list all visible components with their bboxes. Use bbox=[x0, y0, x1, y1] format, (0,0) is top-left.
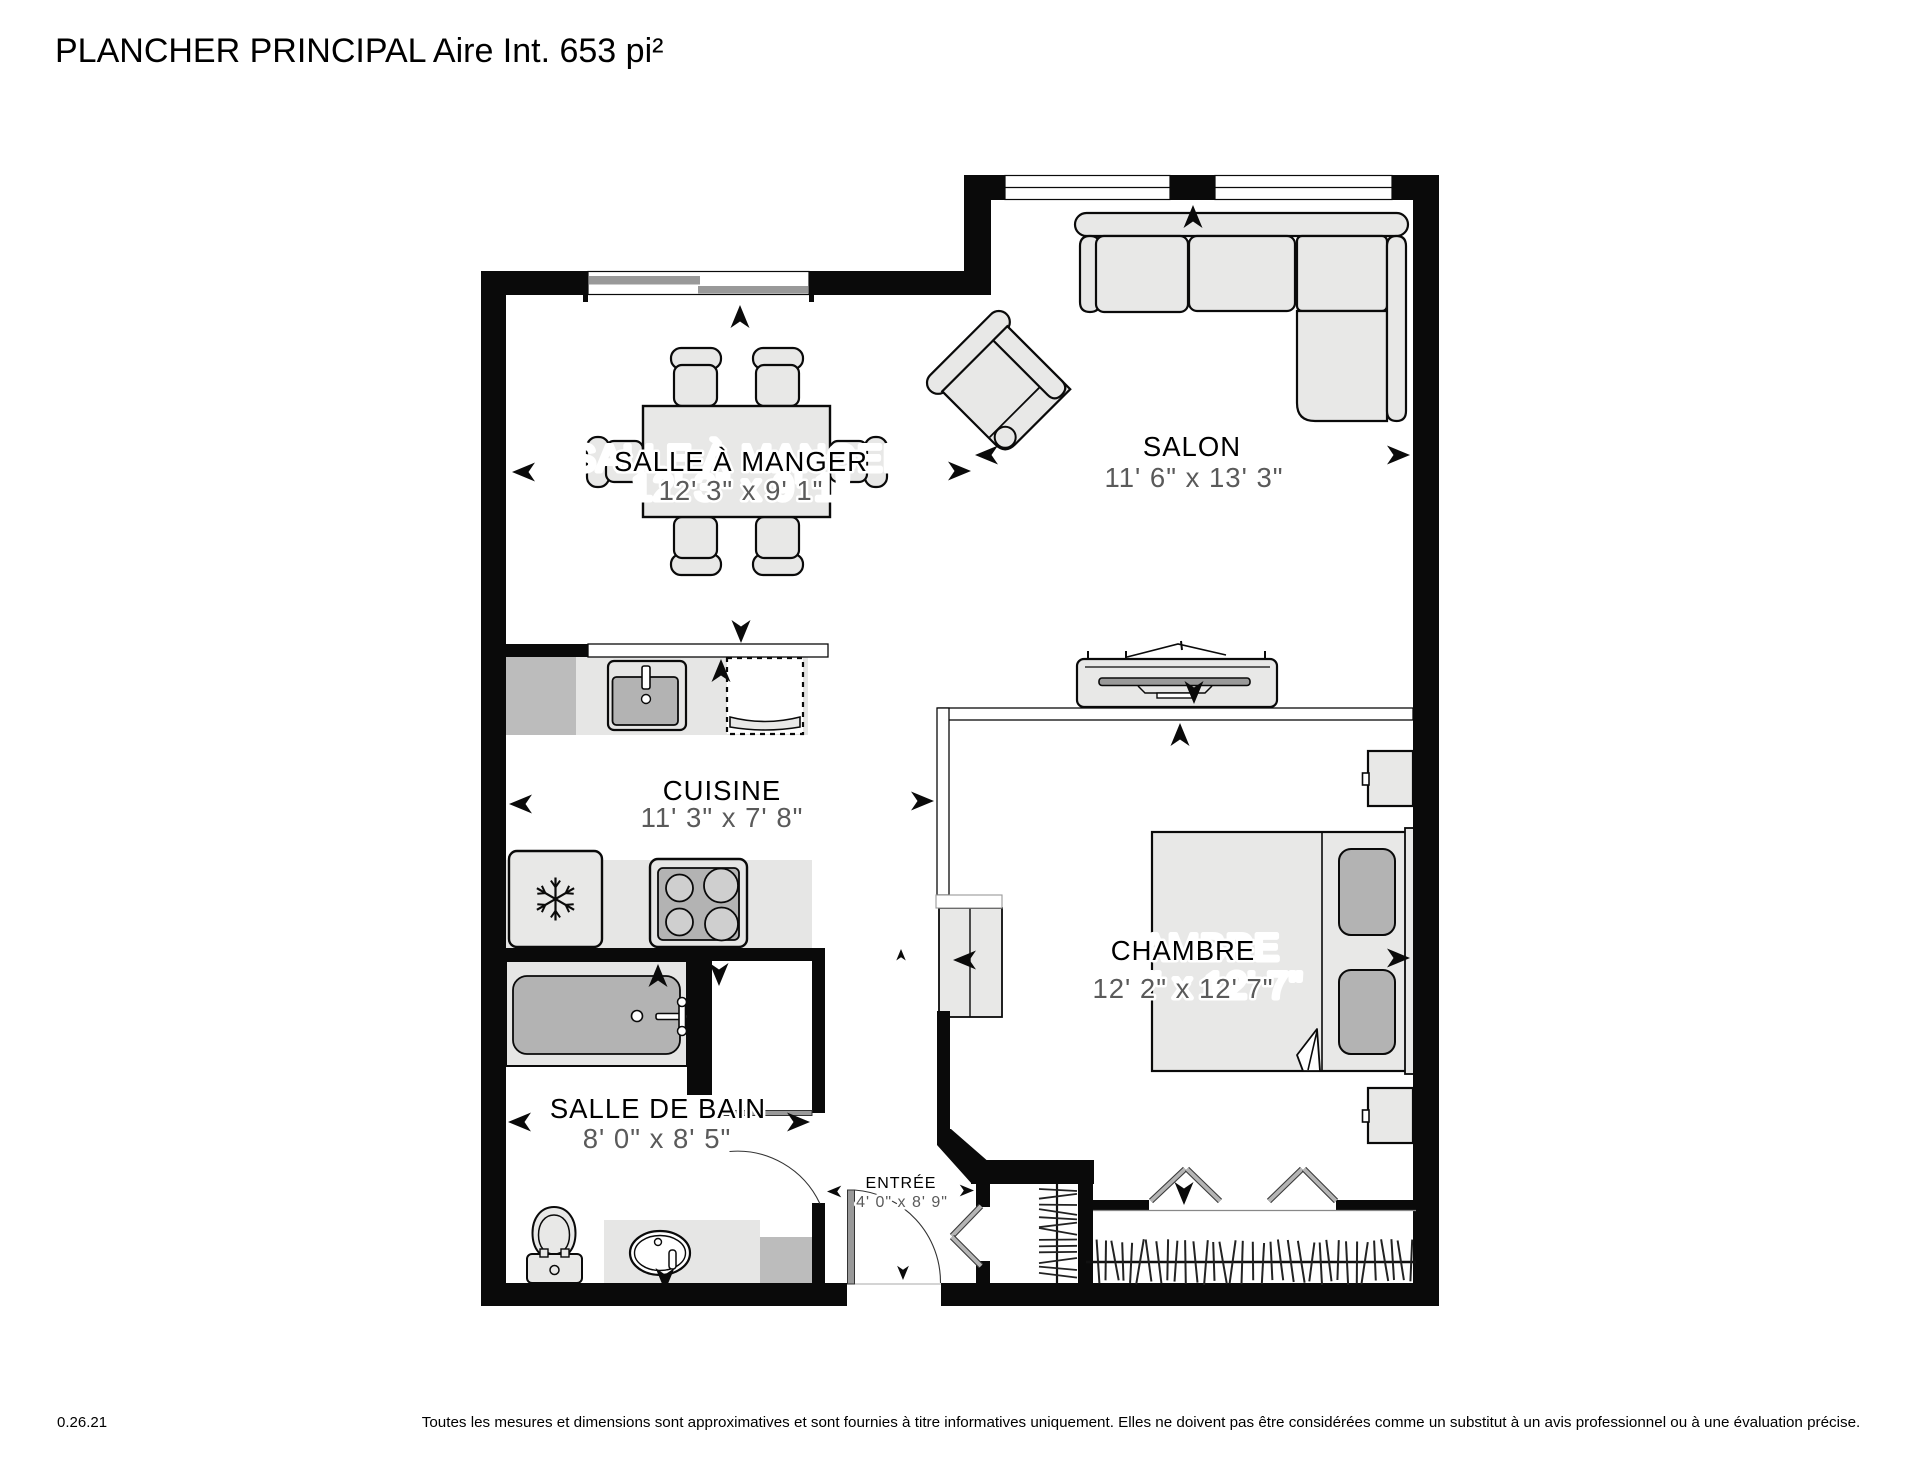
svg-text:4' 0" x 8' 9": 4' 0" x 8' 9" bbox=[856, 1194, 948, 1211]
svg-text:SALON: SALON bbox=[1143, 431, 1241, 462]
svg-text:Toutes les mesures et dimensio: Toutes les mesures et dimensions sont ap… bbox=[422, 1414, 1861, 1431]
svg-text:11' 3" x 7' 8": 11' 3" x 7' 8" bbox=[641, 802, 804, 833]
svg-text:CHAMBRE: CHAMBRE bbox=[1111, 935, 1256, 966]
svg-text:SALLE À MANGER: SALLE À MANGER bbox=[614, 446, 868, 477]
svg-text:ENTRÉE: ENTRÉE bbox=[866, 1173, 937, 1192]
svg-text:0.26.21: 0.26.21 bbox=[57, 1414, 107, 1431]
svg-text:8' 0" x 8' 5": 8' 0" x 8' 5" bbox=[583, 1123, 732, 1154]
svg-text:12' 3" x 9' 1": 12' 3" x 9' 1" bbox=[659, 475, 824, 506]
svg-text:PLANCHER PRINCIPAL Aire Int. 6: PLANCHER PRINCIPAL Aire Int. 653 pi² bbox=[55, 32, 663, 70]
svg-text:SALLE DE BAIN: SALLE DE BAIN bbox=[550, 1093, 766, 1124]
svg-text:12' 2" x 12' 7": 12' 2" x 12' 7" bbox=[1092, 973, 1273, 1004]
svg-text:11' 6" x 13' 3": 11' 6" x 13' 3" bbox=[1104, 462, 1283, 493]
